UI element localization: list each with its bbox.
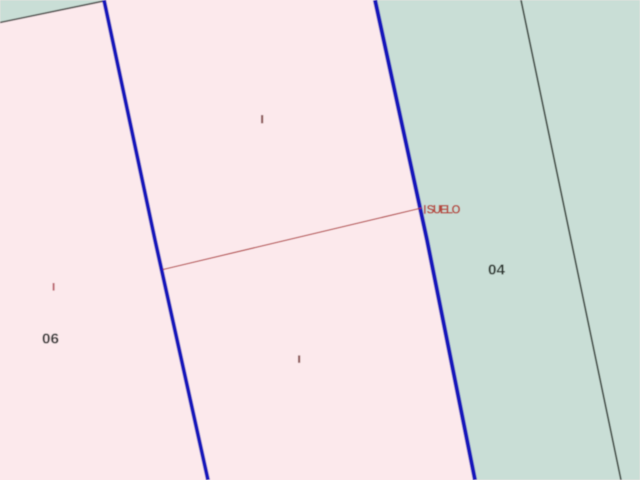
svg-text:04: 04 bbox=[488, 261, 505, 278]
svg-text:SUELO: SUELO bbox=[427, 204, 461, 217]
svg-text:06: 06 bbox=[42, 331, 59, 348]
